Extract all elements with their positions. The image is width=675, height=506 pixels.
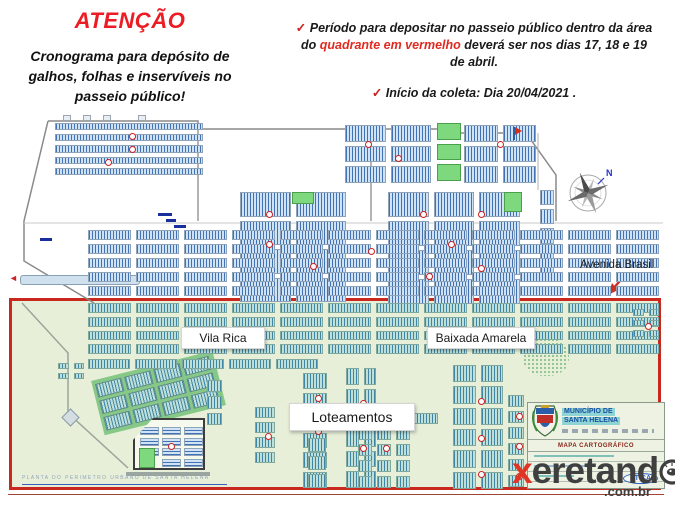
city-block [136, 230, 179, 240]
city-block [377, 476, 391, 488]
city-block [424, 244, 467, 254]
compass-rose-icon: N [562, 163, 618, 219]
city-map: ◄ N [8, 113, 668, 505]
city-block [255, 422, 275, 433]
city-block [376, 244, 419, 254]
city-block [136, 331, 179, 341]
city-block [464, 166, 498, 183]
city-block [424, 258, 467, 268]
city-block [376, 272, 419, 282]
city-block [184, 459, 203, 467]
check-icon: ✓ [372, 86, 382, 100]
city-block [207, 380, 222, 392]
subtitle-line-1: Cronograma para depósito de [30, 48, 229, 64]
city-block [184, 230, 227, 240]
city-block [520, 286, 563, 296]
city-block [280, 286, 323, 296]
city-block [472, 244, 515, 254]
city-block [424, 286, 467, 296]
notice1-line3: de abril. [276, 54, 672, 71]
city-block [503, 146, 537, 163]
city-block [328, 344, 371, 354]
city-block [346, 368, 359, 385]
label-avenida-brasil: Avenida Brasil [580, 259, 653, 271]
city-block [280, 272, 323, 282]
city-block [184, 286, 227, 296]
red-circle-marker [478, 265, 485, 272]
city-block [136, 258, 179, 268]
city-block [472, 272, 515, 282]
city-block [88, 272, 131, 282]
city-block [55, 157, 203, 164]
city-block [568, 317, 611, 327]
city-block [396, 460, 410, 472]
notice2-text: Início da coleta: Dia 20/04/2021 . [386, 86, 576, 100]
city-block [616, 286, 659, 296]
red-circle-marker [478, 435, 485, 442]
navy-dash [158, 213, 172, 216]
notice1-line2-pre: do [301, 38, 320, 52]
city-block [88, 258, 131, 268]
navy-dash [166, 219, 176, 222]
city-block [434, 192, 475, 217]
red-circle-marker [368, 248, 375, 255]
city-block [280, 244, 323, 254]
city-block [453, 472, 476, 489]
logo-x: x [512, 450, 532, 491]
red-circle-marker [478, 471, 485, 478]
city-block [568, 331, 611, 341]
label-loteamentos: Loteamentos [289, 403, 415, 431]
city-block [358, 476, 372, 488]
city-block [464, 125, 498, 142]
city-block [520, 317, 563, 327]
city-block [303, 373, 327, 389]
city-block [140, 438, 159, 446]
city-block [568, 303, 611, 313]
header-notices: ✓ Período para depositar no passeio públ… [276, 20, 672, 102]
notice-collection-start: ✓ Início da coleta: Dia 20/04/2021 . [276, 85, 672, 102]
red-a-marker: ◄ [9, 273, 18, 283]
city-block [184, 258, 227, 268]
city-block [396, 476, 410, 488]
notice1-line1: Período para depositar no passeio públic… [310, 21, 652, 35]
city-block [424, 230, 467, 240]
survey-tick [103, 115, 111, 121]
red-circle-marker [478, 398, 485, 405]
red-circle-marker [360, 445, 367, 452]
city-block [88, 244, 131, 254]
city-block [58, 373, 69, 379]
navy-dash [174, 225, 186, 228]
red-circle-marker [129, 133, 136, 140]
city-block [346, 471, 359, 488]
city-block [232, 286, 275, 296]
city-block [136, 317, 179, 327]
city-block [424, 317, 467, 327]
city-block [184, 244, 227, 254]
city-block [616, 244, 659, 254]
red-circle-marker [266, 241, 273, 248]
red-circle-marker [168, 443, 175, 450]
city-block [520, 272, 563, 282]
city-block [136, 344, 179, 354]
city-block [508, 395, 524, 407]
survey-tick [83, 115, 91, 121]
city-block [345, 146, 386, 163]
city-block [346, 430, 359, 447]
city-block [633, 309, 644, 316]
city-block [184, 272, 227, 282]
city-block [161, 396, 191, 416]
city-block [207, 396, 222, 408]
city-block [508, 427, 524, 439]
red-circle-marker [383, 445, 390, 452]
logo-domain: .com.br [604, 484, 651, 499]
city-block [481, 450, 504, 467]
eye-icon [658, 458, 675, 486]
header-left: ATENÇÃO Cronograma para depósito de galh… [5, 8, 255, 106]
city-block [88, 359, 130, 369]
city-block [616, 230, 659, 240]
city-block [184, 448, 203, 456]
city-block [328, 244, 371, 254]
red-circle-marker [395, 155, 402, 162]
city-block [255, 452, 275, 463]
city-block [232, 258, 275, 268]
city-block [649, 309, 660, 316]
city-block [376, 258, 419, 268]
city-block [232, 272, 275, 282]
city-block [88, 286, 131, 296]
city-block [328, 317, 371, 327]
city-block [280, 344, 323, 354]
city-block [88, 344, 131, 354]
city-block [58, 363, 69, 369]
notice1-line2-post: deverá ser nos dias 17, 18 e 19 [461, 38, 647, 52]
red-circle-marker [129, 146, 136, 153]
survey-tick [63, 115, 71, 121]
city-block [136, 303, 179, 313]
city-block [136, 286, 179, 296]
city-block [103, 411, 133, 431]
red-circle-marker [265, 433, 272, 440]
red-circle-marker [497, 141, 504, 148]
city-block [520, 303, 563, 313]
subtitle-line-2: galhos, folhas e inservíveis no [28, 68, 231, 84]
city-block [568, 244, 611, 254]
red-circle-marker [516, 413, 523, 420]
subtitle-line-3: passeio público! [75, 88, 185, 104]
municipal-coat-of-arms-icon [532, 405, 558, 437]
city-block [472, 286, 515, 296]
map-caption-underline [22, 484, 227, 485]
city-block [280, 331, 323, 341]
title-block-municipality-line2: SANTA HELENA [562, 417, 620, 425]
city-block [276, 359, 318, 369]
city-block [88, 303, 131, 313]
city-block [328, 272, 371, 282]
red-circle-marker [266, 211, 273, 218]
red-circle-marker [315, 395, 322, 402]
flag-marker-icon [513, 127, 515, 140]
red-circle-marker [310, 263, 317, 270]
red-circle-marker [448, 241, 455, 248]
notice-deposit-period: ✓ Período para depositar no passeio públ… [276, 20, 672, 71]
navy-dash [40, 238, 52, 241]
city-block [280, 230, 323, 240]
city-block [396, 444, 410, 456]
city-block [520, 244, 563, 254]
city-block [328, 258, 371, 268]
city-block [135, 359, 177, 369]
city-block [472, 303, 515, 313]
city-block [453, 429, 476, 446]
attention-subtitle: Cronograma para depósito de galhos, folh… [5, 46, 255, 106]
city-block [540, 209, 554, 224]
attention-title: ATENÇÃO [5, 8, 255, 34]
city-block [376, 344, 419, 354]
city-block [308, 456, 326, 470]
city-block [376, 331, 419, 341]
city-block [232, 317, 275, 327]
highlight-quadrante: quadrante em vermelho [320, 38, 461, 52]
city-block [391, 125, 432, 142]
city-block [136, 272, 179, 282]
city-block [88, 230, 131, 240]
city-block [358, 460, 372, 472]
survey-tick [138, 115, 146, 121]
city-block [292, 192, 314, 204]
city-block [453, 408, 476, 425]
city-block [55, 123, 203, 130]
city-block [182, 359, 224, 369]
city-block [328, 286, 371, 296]
city-block [74, 363, 85, 369]
city-block [346, 451, 359, 468]
city-block [376, 230, 419, 240]
city-block [88, 317, 131, 327]
city-block [255, 407, 275, 418]
red-circle-marker [426, 273, 433, 280]
city-block [376, 317, 419, 327]
city-block [280, 317, 323, 327]
red-circle-marker [478, 211, 485, 218]
city-block [184, 427, 203, 435]
city-block [184, 303, 227, 313]
city-block [504, 192, 522, 212]
city-block [345, 166, 386, 183]
city-block [184, 317, 227, 327]
city-block [464, 146, 498, 163]
city-block [472, 230, 515, 240]
city-block [88, 331, 131, 341]
green-block [139, 448, 155, 468]
city-block [328, 303, 371, 313]
city-block [616, 272, 659, 282]
city-block [232, 230, 275, 240]
city-block [472, 317, 515, 327]
city-block [345, 125, 386, 142]
label-vila-rica: Vila Rica [181, 327, 265, 349]
red-circle-marker [645, 323, 652, 330]
city-block [633, 330, 644, 337]
city-block [453, 450, 476, 467]
city-block [633, 320, 644, 327]
city-block [520, 258, 563, 268]
city-block [74, 373, 85, 379]
city-block [328, 331, 371, 341]
city-block [280, 303, 323, 313]
city-block [308, 438, 326, 452]
city-block [364, 368, 377, 385]
city-block [568, 286, 611, 296]
city-block [308, 474, 326, 488]
city-block [520, 230, 563, 240]
city-block [184, 438, 203, 446]
red-circle-marker [365, 141, 372, 148]
city-block [162, 427, 181, 435]
city-block [568, 272, 611, 282]
compass-north-label: N [606, 168, 613, 178]
city-block [55, 168, 203, 175]
city-block [649, 330, 660, 337]
city-block [540, 190, 554, 205]
red-circle-marker [516, 443, 523, 450]
city-block [229, 359, 271, 369]
city-block [391, 166, 432, 183]
title-block-smallprint [562, 429, 654, 433]
city-block [481, 365, 504, 382]
flyer: ATENÇÃO Cronograma para depósito de galh… [0, 0, 675, 506]
city-block [136, 244, 179, 254]
city-block [328, 230, 371, 240]
city-block [453, 365, 476, 382]
city-block [437, 164, 461, 181]
city-block [232, 303, 275, 313]
city-block [162, 459, 181, 467]
city-block [503, 166, 537, 183]
label-baixada-amarela: Baixada Amarela [427, 327, 535, 349]
city-block [453, 386, 476, 403]
city-block [377, 460, 391, 472]
city-block [437, 123, 461, 140]
city-block [376, 303, 419, 313]
check-icon: ✓ [296, 21, 306, 35]
city-block [424, 303, 467, 313]
map-caption: PLANTA DO PERIMETRO URBANO DE SANTA HELE… [22, 475, 210, 481]
city-block [481, 408, 504, 425]
city-block [616, 344, 659, 354]
red-circle-marker [420, 211, 427, 218]
city-block [568, 344, 611, 354]
city-block [568, 230, 611, 240]
city-block [376, 286, 419, 296]
city-block [437, 144, 461, 161]
title-block-municipality-line1: MUNICÍPIO DE [562, 408, 615, 416]
red-circle-marker [105, 159, 112, 166]
city-block [207, 413, 222, 425]
